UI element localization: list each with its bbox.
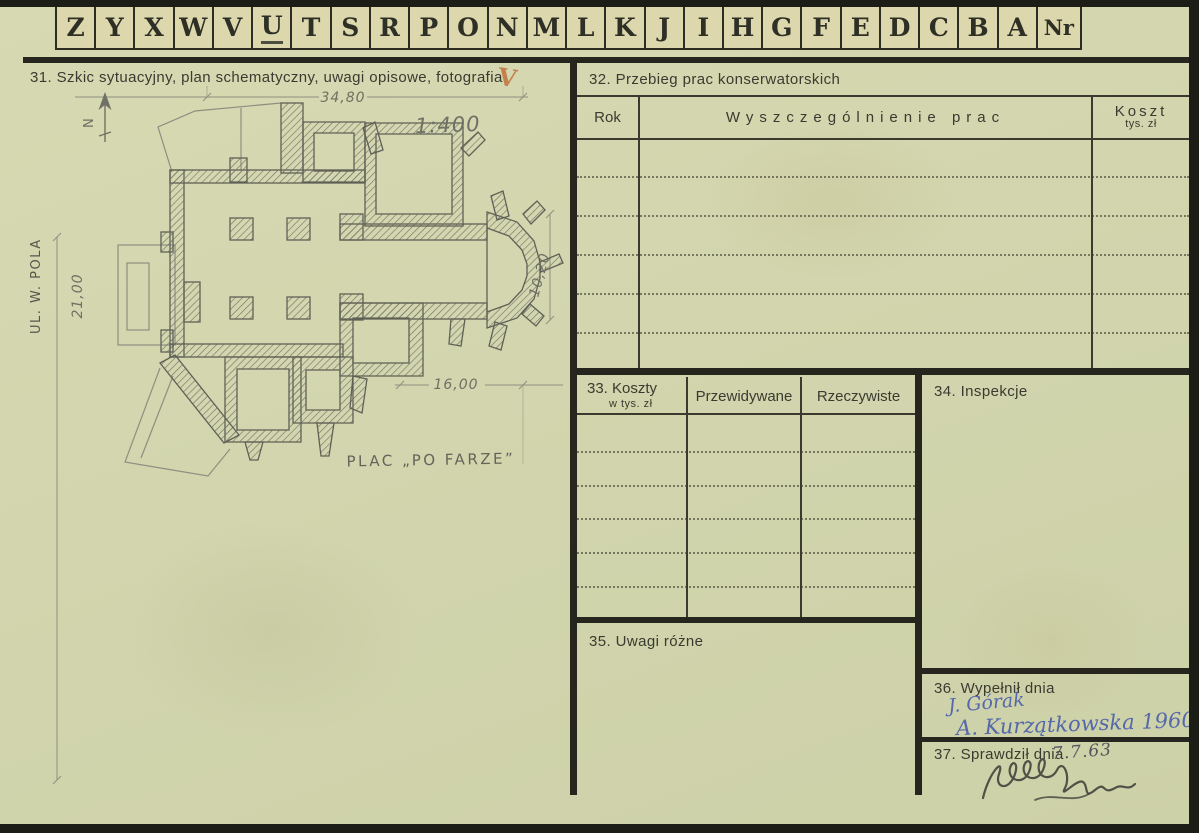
tab-letter-G: G <box>761 7 800 48</box>
tab-letter-O: O <box>447 7 486 48</box>
vertical-divider-right <box>915 371 922 795</box>
section35-title: 35. Uwagi różne <box>589 633 703 650</box>
plan-scale: 1:400 <box>415 112 481 138</box>
col-header-koszt-sub: tys. zł <box>1125 118 1157 131</box>
signature-scribble <box>975 752 1150 816</box>
record-card: ZYXWVUTSRPONMLKJIHGFEDCBANr <box>0 0 1199 833</box>
tab-letter-V: V <box>212 7 251 48</box>
column-line <box>638 97 640 368</box>
church-plan-walls <box>160 103 563 460</box>
plan-square-label: PLAC „PO FARZE” <box>346 450 515 471</box>
scan-edge-bottom <box>0 824 1199 833</box>
rule-under-33-header <box>577 413 915 415</box>
tab-letter-K: K <box>604 7 643 48</box>
site-plan-sketch: 34,80 1:400 21,00 10,20 16,00 UL. W. POL… <box>23 64 570 824</box>
column-line <box>686 377 688 617</box>
tab-nr: Nr <box>1036 7 1082 48</box>
tab-row: ZYXWVUTSRPONMLKJIHGFEDCBANr <box>55 7 1082 50</box>
tab-letter-N: N <box>487 7 526 48</box>
table-row-separator <box>577 254 1189 256</box>
table-row-separator <box>577 215 1189 217</box>
horizontal-rule-36-top <box>922 668 1189 674</box>
table-row-separator <box>577 293 1189 295</box>
col-header-rzeczywiste: Rzeczywiste <box>802 377 915 415</box>
tab-letter-W: W <box>173 7 212 48</box>
table-row-separator <box>577 451 915 453</box>
tab-letter-U: U <box>251 7 290 48</box>
plan-dim-top: 34,80 <box>320 90 365 106</box>
tab-letter-C: C <box>918 7 957 48</box>
col-header-koszt-main: Koszt <box>1115 105 1168 118</box>
col-header-przewidywane: Przewidywane <box>688 377 800 415</box>
table-row-separator <box>577 485 915 487</box>
scan-edge-top <box>0 0 1199 7</box>
section32-title: 32. Przebieg prac konserwatorskich <box>589 71 840 88</box>
col-header-rok: Rok <box>577 97 638 138</box>
vertical-divider-main <box>570 62 577 795</box>
tab-letter-I: I <box>683 7 722 48</box>
tab-letter-E: E <box>840 7 879 48</box>
tab-letter-F: F <box>800 7 839 48</box>
paper-stain <box>700 120 960 280</box>
section33-title-cell: 33. Koszty w tys. zł <box>577 377 686 415</box>
horizontal-rule-33-bottom <box>577 617 915 623</box>
column-line <box>800 377 802 617</box>
horizontal-rule-37-top <box>922 737 1189 742</box>
plan-north-label: N <box>82 118 97 128</box>
tab-letter-P: P <box>408 7 447 48</box>
dimension-lines <box>53 86 563 784</box>
tab-letter-L: L <box>565 7 604 48</box>
tab-letter-D: D <box>879 7 918 48</box>
table-row-separator <box>577 332 1189 334</box>
tab-letter-M: M <box>526 7 565 48</box>
column-line <box>1091 97 1093 368</box>
horizontal-rule-32-bottom <box>577 368 1189 375</box>
scan-edge-right <box>1189 0 1199 833</box>
plan-dim-bottom: 16,00 <box>433 377 478 393</box>
section33-title-sub: w tys. zł <box>587 398 653 410</box>
table-row-separator <box>577 518 915 520</box>
col-header-prace: Wyszczególnienie prac <box>640 97 1091 138</box>
tab-letter-H: H <box>722 7 761 48</box>
horizontal-rule-top <box>23 57 1189 63</box>
tab-letter-S: S <box>330 7 369 48</box>
plan-street-label: UL. W. POLA <box>29 238 44 334</box>
table-row-separator <box>577 586 915 588</box>
tab-letter-B: B <box>957 7 996 48</box>
section33-title: 33. Koszty <box>587 380 657 397</box>
tab-letter-A: A <box>997 7 1036 48</box>
north-arrow-icon <box>99 94 111 142</box>
table-row-separator <box>577 176 1189 178</box>
tab-letter-R: R <box>369 7 408 48</box>
tab-letter-X: X <box>133 7 172 48</box>
section31-title-row: 31. Szkic sytuacyjny, plan schematyczny,… <box>30 69 550 86</box>
section34-title: 34. Inspekcje <box>934 383 1028 400</box>
table-row-separator <box>577 552 915 554</box>
plan-dim-left: 21,00 <box>70 273 86 318</box>
rule-under-32-header <box>577 138 1189 140</box>
section31-title: 31. Szkic sytuacyjny, plan schematyczny,… <box>30 69 503 86</box>
tab-letter-T: T <box>290 7 329 48</box>
col-header-koszt: Koszt tys. zł <box>1093 97 1189 138</box>
tab-letter-Z: Z <box>55 7 94 48</box>
tab-letter-J: J <box>644 7 683 48</box>
tab-letter-Y: Y <box>94 7 133 48</box>
